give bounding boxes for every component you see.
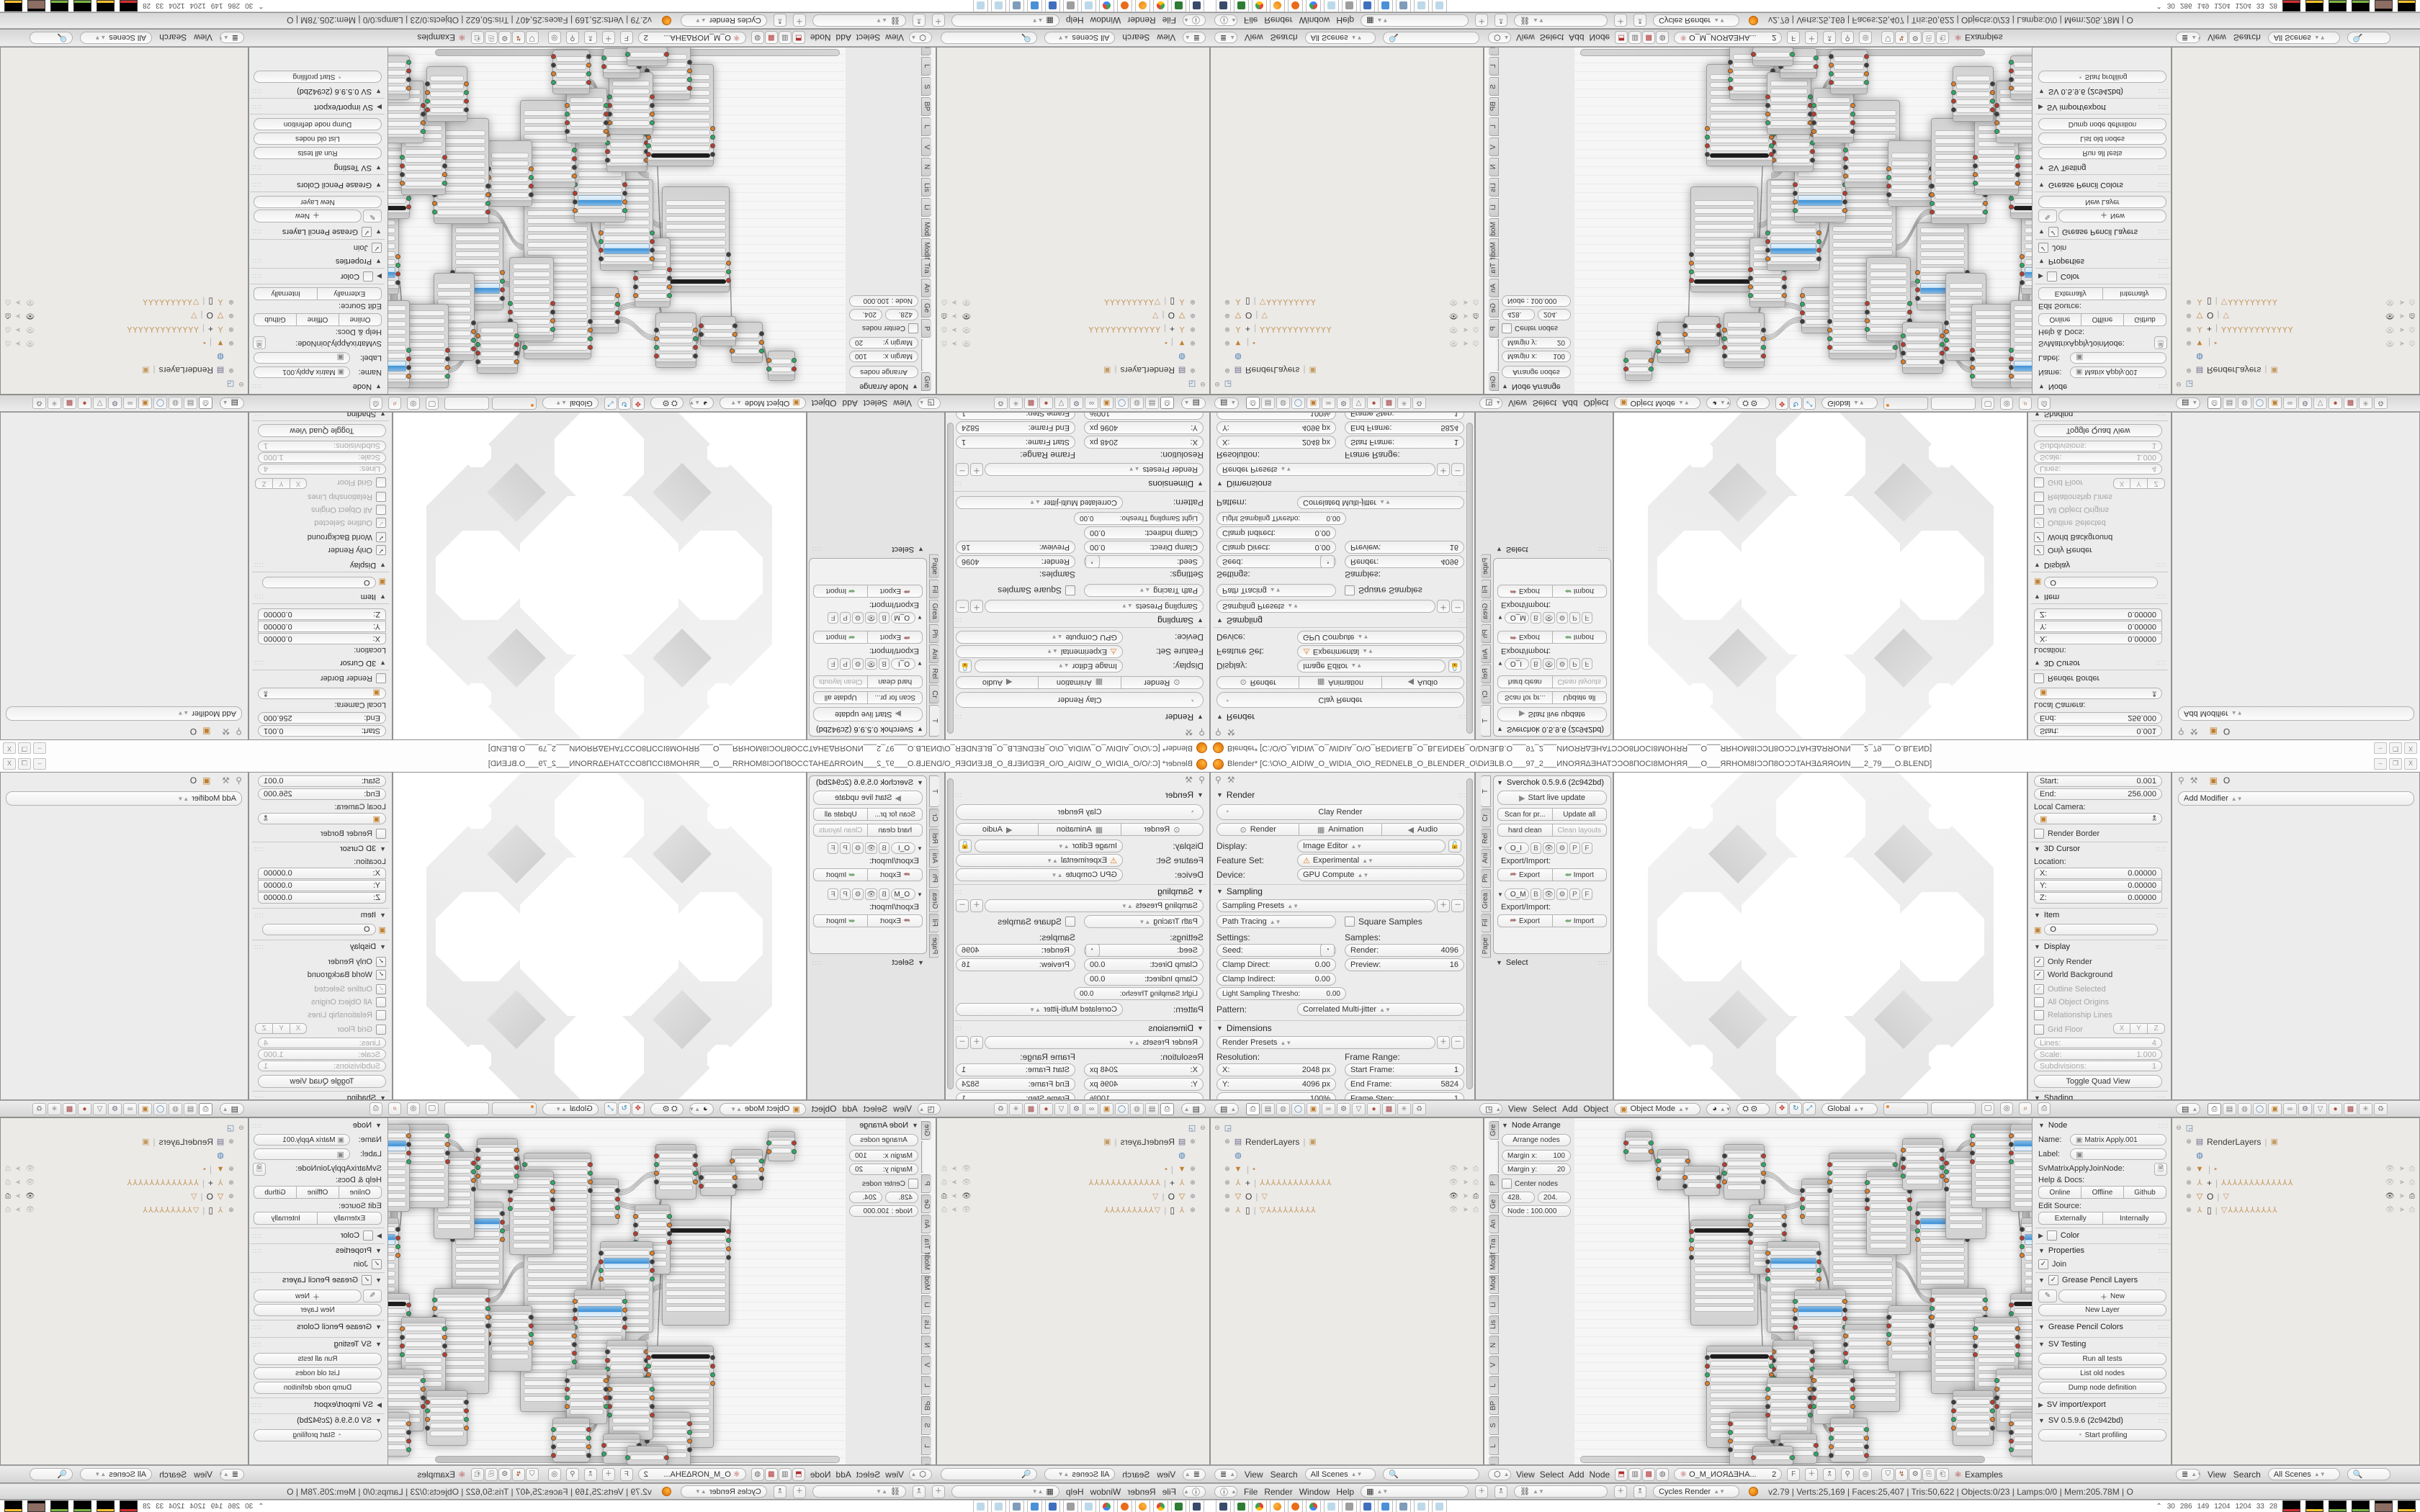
node-socket[interactable] [1682,1175,1688,1180]
grid-subdiv-field[interactable]: Subdivisions:1 [2034,1061,2162,1071]
sv-import-export-panel-header[interactable]: ▶SV import/export:::: [251,103,382,112]
node-socket[interactable] [551,1444,556,1449]
viewport-shading-dropdown[interactable]: ◕▲▼ [1706,397,1731,410]
node-socket[interactable] [667,1223,672,1228]
outliner-row[interactable]: ◍ [1224,1148,1482,1162]
eye-icon[interactable]: 👁 [962,1206,971,1214]
node-socket[interactable] [1765,1404,1770,1409]
eye-icon[interactable]: 👁 [2385,339,2395,347]
expander-icon[interactable]: ⊕ [228,325,235,333]
fake-user-button[interactable]: F [1787,32,1800,45]
node-socket[interactable] [687,77,692,82]
cursor-icon[interactable]: ➤ [951,339,957,347]
render-panel-header[interactable]: ▼Render:::: [951,790,1204,800]
expander-icon[interactable]: ⊕ [1189,1179,1196,1187]
outliner-row[interactable]: ◍ [2,1148,235,1162]
tree2-export-button[interactable]: ⮫Export [1497,914,1553,927]
node-socket[interactable] [406,374,411,379]
cursor-icon[interactable]: ➤ [2399,1206,2405,1214]
node-socket[interactable] [650,1251,655,1256]
node-socket[interactable] [551,80,556,85]
node-socket[interactable] [1769,152,1774,157]
node-socket[interactable] [1748,267,1753,272]
tree1-name-field[interactable]: O_I [1505,842,1529,854]
shelf-tab-Ph[interactable]: Ph [929,869,939,888]
camera-icon[interactable]: ⎙ [941,339,947,347]
node-socket[interactable] [1951,1426,1956,1431]
node-tab-Lis[interactable]: Lis [921,1315,931,1334]
node-socket[interactable] [445,356,450,361]
select-menu[interactable]: Select [864,1104,887,1114]
node-socket[interactable] [1901,359,1906,364]
local-camera-field[interactable]: ▣🕱 [2034,688,2162,699]
shelf-tab-Fil[interactable]: Fil [1481,580,1491,598]
node-socket[interactable] [1656,340,1661,345]
expander-icon[interactable]: ⊕ [228,1165,235,1173]
outliner-item-label[interactable]: RenderLayers [1245,1137,1299,1147]
opengl-render-icon[interactable]: ⎙ [2038,397,2051,410]
node-socket[interactable] [1623,1149,1628,1154]
viewport-shading-dropdown[interactable]: ◕▲▼ [689,397,714,410]
recorder-taskbar-icon[interactable] [1171,0,1186,12]
node-tab-Gre[interactable]: Gre [921,1121,931,1140]
search-menu[interactable]: Search [159,1470,187,1480]
node-socket[interactable] [1649,358,1654,363]
node-socket[interactable] [406,1151,411,1156]
arrange-nodes-button[interactable]: Arrange nodes [849,1134,918,1146]
sverchok-panel-header[interactable]: ▼Sverchok 0.5.9.6 (2c942bd) [816,725,923,734]
display-dropdown[interactable]: Image Editor▲▼ [1297,660,1446,672]
node-socket[interactable] [1901,342,1906,347]
data-tab-icon[interactable]: ▽ [1352,397,1366,410]
sverchok-node[interactable] [1752,1446,1793,1465]
help-menu[interactable]: Help [1336,16,1354,26]
gp-layers-panel-header[interactable]: ▼✓Grease Pencil Layers:::: [2038,1275,2169,1285]
visibility-toggles[interactable]: 👁➤⎙ [2,325,35,333]
node-socket[interactable] [1842,1316,1847,1321]
only-render-checkbox[interactable]: ✓Only Render [2034,957,2092,967]
device-dropdown[interactable]: GPU Compute▲▼ [1297,868,1464,881]
layers-grid-2[interactable] [444,397,489,410]
node-socket[interactable] [2009,68,2014,73]
node-socket[interactable] [1915,1237,1920,1242]
node-socket[interactable] [664,1455,669,1460]
notepad3-taskbar-icon[interactable] [973,1500,988,1512]
node-socket[interactable] [550,1197,555,1202]
material-tab-icon[interactable]: ● [1039,397,1053,410]
node-socket[interactable] [395,1253,400,1258]
node-socket[interactable] [1816,1268,1821,1273]
node-socket[interactable] [601,1443,606,1448]
node-socket[interactable] [1761,345,1766,350]
node-socket[interactable] [1973,1352,1978,1357]
object-tab-icon[interactable]: ▣ [1307,397,1320,410]
node-socket[interactable] [2009,1133,2014,1138]
grid-x-button[interactable]: X [2113,1023,2130,1034]
expander-icon[interactable]: ⊕ [1224,1165,1231,1173]
node-socket[interactable] [1656,1176,1661,1181]
sv-version-panel-header[interactable]: ▼SV 0.5.9.6 (2c942bd):::: [251,1416,382,1425]
node-socket[interactable] [599,239,604,244]
tree2-export-button[interactable]: ⮫Export [868,914,923,927]
outliner-item-label[interactable]: O [2207,1192,2213,1202]
clamp-direct-field[interactable]: Clamp Direct:0.00 [1216,958,1336,971]
node-socket[interactable] [1814,64,1819,69]
scene-add-button[interactable]: ＋ [1614,1485,1627,1498]
tree1-import-button[interactable]: ⮨Import [813,631,868,644]
pin-icon[interactable]: ⚲ [566,32,579,45]
camera-icon[interactable]: ⎙ [5,339,11,347]
node-socket[interactable] [604,112,609,117]
layers-grid[interactable] [492,397,537,410]
world-background-checkbox[interactable]: ✓World Background [2034,970,2112,980]
node-socket[interactable] [1816,1259,1821,1264]
node-socket[interactable] [667,267,672,272]
sverchok-node[interactable] [1724,1144,1765,1200]
screwdriver-icon[interactable]: ⚒ [2190,775,2198,786]
node-socket[interactable] [1951,1417,1956,1422]
gp-pencil-selector[interactable]: ✎ [2038,1290,2057,1302]
node-editor-tabs[interactable]: GrePGeAnTraModifModLiLisNVLBPSLNBetG [1484,1118,1499,1465]
world-background-checkbox[interactable]: ✓World Background [308,532,386,542]
notepad-taskbar-icon[interactable] [1324,0,1339,12]
node-socket[interactable] [471,346,476,351]
shelf-tab-Pape[interactable]: Pape [929,934,939,958]
node-socket[interactable] [421,112,426,117]
opengl-render-icon[interactable]: ⎙ [2038,1102,2051,1115]
rlayers-tab-icon[interactable]: ▤ [184,397,197,410]
node-socket[interactable] [710,152,715,157]
node-socket[interactable] [445,365,450,370]
sverchok-node[interactable] [1830,50,1868,94]
node-socket[interactable] [406,68,411,73]
only-render-checkbox[interactable]: ✓Only Render [2034,545,2092,555]
seed-field[interactable]: Seed:0 [1084,944,1204,957]
node-socket[interactable] [550,1180,555,1185]
select-panel-header[interactable]: ▼Select:::: [812,545,924,554]
node-socket[interactable] [1761,1162,1766,1167]
search-menu[interactable]: Search [1122,1470,1149,1480]
object-menu[interactable]: Object [812,1104,837,1114]
grid-subdiv-field[interactable]: Subdivisions:1 [258,1061,386,1071]
clean-layouts-button[interactable]: Clean layouts [1553,675,1608,688]
node-socket[interactable] [766,358,771,363]
render-engine-selector[interactable]: Cycles Render▲▼ [1653,14,1739,27]
outliner-row[interactable]: ◍ [1224,350,1482,364]
node-socket[interactable] [471,1187,476,1192]
outliner-row[interactable]: ⊕▽O|▽👁➤⎙ [2,1189,235,1203]
viewport-3d[interactable] [1613,412,2027,740]
display-mode-dropdown[interactable]: All Scenes▲▼ [2268,1468,2340,1480]
camera-icon[interactable]: ⎙ [1473,1192,1479,1200]
render-border-checkbox[interactable]: Render Border [2034,829,2099,839]
node-tab-N[interactable]: N [1489,1457,1499,1465]
node-socket[interactable] [572,174,577,179]
sv-testing-panel-header[interactable]: ▼SV Testing:::: [2038,1340,2169,1349]
node-socket[interactable] [1623,1140,1628,1146]
device-dropdown[interactable]: GPU Compute▲▼ [956,631,1123,644]
physics-tab-icon[interactable]: ♻ [994,1103,1008,1115]
node-socket[interactable] [650,1268,655,1273]
margin-x-field[interactable]: Margin x:100 [1502,351,1571,362]
layers-grid[interactable] [1883,1102,1928,1115]
node-tab-Li[interactable]: Li [1489,1295,1499,1314]
node-socket[interactable] [726,278,731,283]
scene-selector[interactable]: ⛓▲▼ [1514,14,1608,27]
node-socket[interactable] [406,356,411,361]
outliner-item-label[interactable]: RenderLayers [159,366,213,376]
node-socket[interactable] [615,1205,620,1210]
editor-type-selector[interactable]: ◳▲▼ [918,1103,941,1115]
node-zoom-slider[interactable]: Node : 100.000 [849,295,918,307]
gp-pencil-selector[interactable]: ✎ [363,1290,382,1302]
node-editor-tabs[interactable]: GrePGeAnTraModifModLiLisNVLBPSLNBetG [1484,47,1499,394]
node-tab-N[interactable]: N [1489,47,1499,55]
sverchok-node[interactable] [477,322,518,374]
outliner-row[interactable]: ⊕▼|▪👁➤⎙ [1224,336,1482,350]
constraints-tab-icon[interactable]: ∞ [1085,397,1098,410]
display-mode-dropdown[interactable]: All Scenes▲▼ [1044,32,1116,44]
camera-icon[interactable]: ⎙ [2409,1179,2415,1187]
node-socket[interactable] [1811,112,1816,117]
dim-preset-remove-button[interactable]: － [1451,1036,1464,1049]
node-socket[interactable] [1973,1344,1978,1349]
particles-tab-icon[interactable]: ✳ [1009,1103,1023,1115]
node-socket[interactable] [759,331,764,336]
node-socket[interactable] [1865,318,1870,323]
eye-icon[interactable]: 👁 [1449,1192,1458,1200]
node-socket[interactable] [1800,1214,1805,1219]
file-menu[interactable]: File [1162,1487,1176,1497]
proportional-edit-icon[interactable]: ◎ [407,1102,420,1115]
node-socket[interactable] [599,1268,604,1273]
node-tab-Lis[interactable]: Lis [1489,1315,1499,1334]
outliner-item-label[interactable]: O [1245,311,1252,321]
shelf-tab-Pape[interactable]: Pape [1481,934,1491,958]
tree2-bake-button[interactable]: B [1531,888,1541,900]
node-socket[interactable] [1808,94,1813,99]
tool-shelf-tabs[interactable]: TCrRelAniPhGreaFilPape [929,773,944,1104]
expander-icon[interactable]: ⊕ [1189,1165,1196,1173]
window-menu[interactable]: Window [1090,16,1121,26]
node-socket[interactable] [551,1427,556,1432]
gp-colors-panel-header[interactable]: ▼Grease Pencil Colors:::: [251,1323,382,1331]
node-socket[interactable] [726,1238,731,1243]
node-socket[interactable] [1973,1326,1978,1331]
preset-remove-button[interactable]: － [1451,899,1464,912]
node-socket[interactable] [573,191,578,196]
node-socket[interactable] [1886,184,1891,189]
animation-button[interactable]: ▦Animation [1299,823,1381,836]
tray-expand-icon[interactable]: ⌃ [2156,2,2161,10]
node-socket[interactable] [1722,1171,1727,1176]
node-socket[interactable] [1983,210,1988,215]
restore-button[interactable]: ❐ [18,758,31,770]
node-tab-Ge[interactable]: Ge [1489,1194,1499,1213]
camera-icon[interactable]: ⎙ [5,325,11,333]
outliner-row[interactable]: ⊕⅄▯|▽⅄⅄⅄⅄⅄⅄⅄⅄⅄👁➤⎙ [2,1203,235,1217]
frame-step-field[interactable]: Frame Step:1 [1345,1092,1464,1100]
node-socket[interactable] [687,1421,692,1426]
editor-type-selector[interactable]: ≣▲▼ [220,32,244,44]
node-socket[interactable] [730,348,735,354]
node-socket[interactable] [1765,120,1770,125]
node-graph-canvas[interactable] [1574,1118,2032,1465]
select-panel-header[interactable]: ▼Select:::: [1496,545,1608,554]
cursor-icon[interactable]: ➤ [1463,312,1469,320]
screenshot-taskbar-icon[interactable] [1216,0,1231,12]
preset-remove-button[interactable]: － [956,600,969,613]
node-socket[interactable] [1705,1381,1710,1386]
github-button[interactable]: Github [254,313,296,326]
node-socket[interactable] [654,1162,659,1167]
tree2-bake-button[interactable]: B [879,612,889,624]
node-socket[interactable] [1748,284,1753,289]
expander-icon[interactable]: ⊕ [1189,298,1196,306]
seed-field[interactable]: Seed:0 [1084,555,1204,568]
window-menu[interactable]: Window [1090,1487,1121,1497]
tree2-export-button[interactable]: ⮫Export [1497,585,1553,598]
outliner-row[interactable]: ⊕▤RenderLayers|▣ [938,364,1196,377]
outliner-item-label[interactable]: + [1170,325,1175,335]
visibility-toggles[interactable]: 👁➤⎙ [938,1179,971,1187]
node-socket[interactable] [400,181,405,186]
visibility-toggles[interactable]: 👁➤⎙ [2385,325,2418,333]
sverchok-node[interactable] [1690,1220,1758,1326]
node-socket[interactable] [1994,1387,1999,1392]
node-socket[interactable] [1970,1133,1975,1138]
join-checkbox[interactable]: ✓Join [354,243,382,253]
node-socket[interactable] [395,254,400,259]
node-socket[interactable] [529,1332,534,1337]
node-socket[interactable] [1793,208,1798,213]
grid-y-button[interactable]: Y [272,1023,290,1034]
notepad2-taskbar-icon[interactable] [1414,1500,1429,1512]
node-socket[interactable] [586,54,591,59]
outliner-row[interactable]: ⊕⅄+|⅄⅄⅄⅄⅄⅄⅄⅄⅄⅄⅄⅄⅄👁➤⎙ [2185,323,2418,336]
docs-icon[interactable]: 🗎 [253,1163,266,1176]
node-socket[interactable] [633,276,638,281]
screenshot-taskbar-icon[interactable] [1216,1500,1231,1512]
outliner-item-label[interactable]: RenderLayers [159,1137,213,1147]
node-socket[interactable] [1827,336,1832,341]
node-socket[interactable] [650,248,655,253]
shelf-tab-Rel[interactable]: Rel [929,665,939,683]
world-tab-icon[interactable]: ◯ [1115,1103,1129,1115]
tree2-show-icon[interactable]: 👁 [865,612,877,624]
node-socket[interactable] [550,327,555,332]
lock-to-scene-icon[interactable]: 🖵 [426,1102,439,1115]
node-socket[interactable] [1811,1387,1816,1392]
node-socket[interactable] [485,1323,490,1328]
outliner-row[interactable]: ⊖◲ [2,1121,245,1135]
node-socket[interactable] [1728,1447,1733,1452]
eye-icon[interactable]: 👁 [25,1179,35,1187]
shading-panel-header[interactable]: ▼Shading:::: [2034,1094,2166,1100]
preset-add-button[interactable]: ＋ [970,600,983,613]
node-socket[interactable] [730,1158,735,1164]
node-panel-header[interactable]: ▼Node:::: [251,1121,382,1130]
run-all-tests-button[interactable]: Run all tests [2038,147,2166,159]
expander-icon[interactable]: ⊕ [1189,312,1196,320]
toggle-quad-view-button[interactable]: Toggle Quad View [2034,424,2162,437]
outliner-item-label[interactable]: ▯ [208,1205,213,1215]
select-menu[interactable]: Select [1533,398,1556,408]
outliner-row[interactable]: ⊕▽O|▽👁➤⎙ [938,1189,1196,1203]
node-socket[interactable] [650,239,655,244]
node-socket[interactable] [1810,1358,1815,1363]
node-socket[interactable] [604,1395,609,1400]
screwdriver-icon[interactable]: ⚒ [222,726,230,737]
clip-start-field[interactable]: Start:0.001 [258,775,386,787]
tree1-process-button[interactable]: P [1569,842,1580,854]
eye-icon[interactable]: 👁 [1449,1179,1458,1187]
outline-selected-checkbox[interactable]: ✓Outline Selected [314,518,386,528]
editor-type-selector[interactable]: ▤▲▼ [1214,397,1239,409]
cursor-icon[interactable]: ➤ [2399,1179,2405,1187]
constraints-tab-icon[interactable]: ∞ [2283,397,2297,410]
outliner-item-label[interactable]: ▯ [2207,297,2212,307]
node-socket[interactable] [572,1333,577,1338]
eye-icon[interactable]: 👁 [962,325,971,333]
outliner-row[interactable]: ⊕⅄▯|▽⅄⅄⅄⅄⅄⅄⅄⅄⅄👁➤⎙ [2185,295,2418,309]
only-render-checkbox[interactable]: ✓Only Render [328,545,386,555]
node-socket[interactable] [1656,1158,1661,1164]
expander-icon[interactable]: ⊖ [1214,1124,1221,1132]
window-titlebar[interactable]: Blender* [C:\O\O_AIDIW_O_WIDIA_O\O_REDNE… [1210,739,2420,756]
rlayers-tab-icon[interactable]: ▤ [2223,1103,2236,1115]
visibility-toggles[interactable]: 👁➤⎙ [2,298,35,306]
node-socket[interactable] [565,129,570,134]
modifiers-tab-icon[interactable]: ⚙ [1337,397,1350,410]
node-socket[interactable] [400,155,405,160]
hard-clean-button[interactable]: hard clean [1497,675,1553,688]
clip-start-field[interactable]: Start:0.001 [2034,725,2162,737]
texture-nodes-icon[interactable]: ▩ [1642,32,1655,45]
copy-icon[interactable]: ⎘ [1922,32,1935,45]
node-socket[interactable] [759,1167,764,1172]
search-menu[interactable]: Search [159,33,187,43]
sv-import-export-panel-header[interactable]: ▶SV import/export:::: [251,1400,382,1409]
expander-icon[interactable]: ⊕ [1189,1192,1196,1200]
node-socket[interactable] [1782,1223,1787,1228]
visibility-toggles[interactable]: 👁➤⎙ [2385,298,2418,306]
dimensions-panel-header[interactable]: ▼Dimensions:::: [1216,479,1469,489]
github-button[interactable]: Github [254,1186,296,1199]
node-socket[interactable] [1901,1148,1906,1153]
expander-icon[interactable]: ⊖ [2175,1124,2182,1132]
node-socket[interactable] [1864,54,1869,59]
visibility-toggles[interactable]: 👁➤⎙ [1449,1165,1482,1173]
expander-icon[interactable]: ⊖ [238,380,245,388]
expander-icon[interactable]: ⊕ [228,1206,235,1214]
margin-y-field[interactable]: Margin y:20 [849,1164,918,1175]
node-socket[interactable] [615,1188,620,1193]
render-presets-dropdown[interactable]: Render Presets▲▼ [1216,463,1435,476]
clip-end-field[interactable]: End:256.000 [258,712,386,724]
minimize-button[interactable]: – [2374,758,2387,770]
node-socket[interactable] [1944,329,1949,334]
node-socket[interactable] [1944,1187,1949,1192]
material-tab-icon[interactable]: ● [78,397,91,410]
snap-magnet-icon[interactable]: ⌕ [2019,1102,2032,1115]
relationship-lines-checkbox[interactable]: Relationship Lines [308,1010,386,1020]
editor-type-selector[interactable]: ▤▲▼ [220,397,244,409]
node-socket[interactable] [529,1315,534,1320]
eye-icon[interactable]: 👁 [1449,298,1458,306]
tool-shelf-tabs[interactable]: TCrRelAniPhGreaFilPape [1476,773,1491,1104]
parent-tree-icon[interactable]: ◎ [1859,1468,1872,1481]
